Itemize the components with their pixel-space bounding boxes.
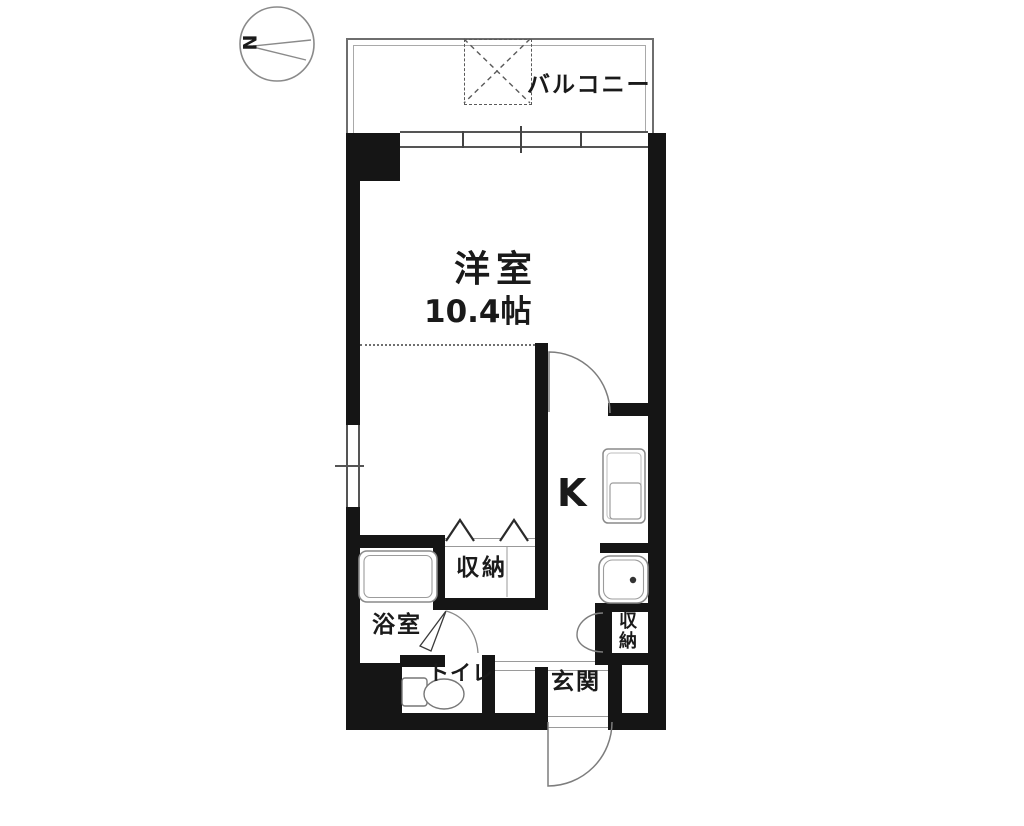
door-arc-closet-lower bbox=[577, 635, 603, 652]
door-leaf-bathroom bbox=[420, 611, 446, 651]
closet-entry-label: 収納 bbox=[617, 611, 635, 651]
bifold-door-icon bbox=[446, 520, 474, 541]
hatch-cross-icon bbox=[464, 39, 530, 103]
door-arc-closet-upper bbox=[577, 613, 603, 635]
main-room-name-label: 洋室 bbox=[454, 252, 538, 288]
closet-center-label: 収納 bbox=[456, 557, 508, 580]
faucet-dot-icon bbox=[630, 577, 636, 583]
bathtub-icon bbox=[359, 551, 437, 602]
door-arc-entrance bbox=[548, 722, 612, 786]
balcony-label: バルコニー bbox=[527, 74, 652, 97]
kitchen-sink-icon bbox=[599, 556, 648, 603]
entrance-label: 玄関 bbox=[551, 671, 601, 694]
toilet-label: トイレ bbox=[428, 663, 494, 684]
kitchen-counter-icon bbox=[603, 449, 645, 523]
plan-graphics bbox=[0, 0, 1024, 826]
bathroom-label: 浴室 bbox=[372, 614, 422, 637]
door-arc-kitchen bbox=[549, 352, 610, 413]
main-room-size-label: 10.4帖 bbox=[424, 297, 532, 328]
door-arc-bathroom bbox=[446, 611, 478, 653]
floorplan-page: N バルコニー 洋室 10.4帖 K 収納 収納 浴室 トイレ 玄関 bbox=[0, 0, 1024, 826]
bifold-door-icon bbox=[500, 520, 528, 541]
kitchen-label: K bbox=[557, 474, 586, 512]
compass-north-label: N bbox=[241, 35, 260, 51]
